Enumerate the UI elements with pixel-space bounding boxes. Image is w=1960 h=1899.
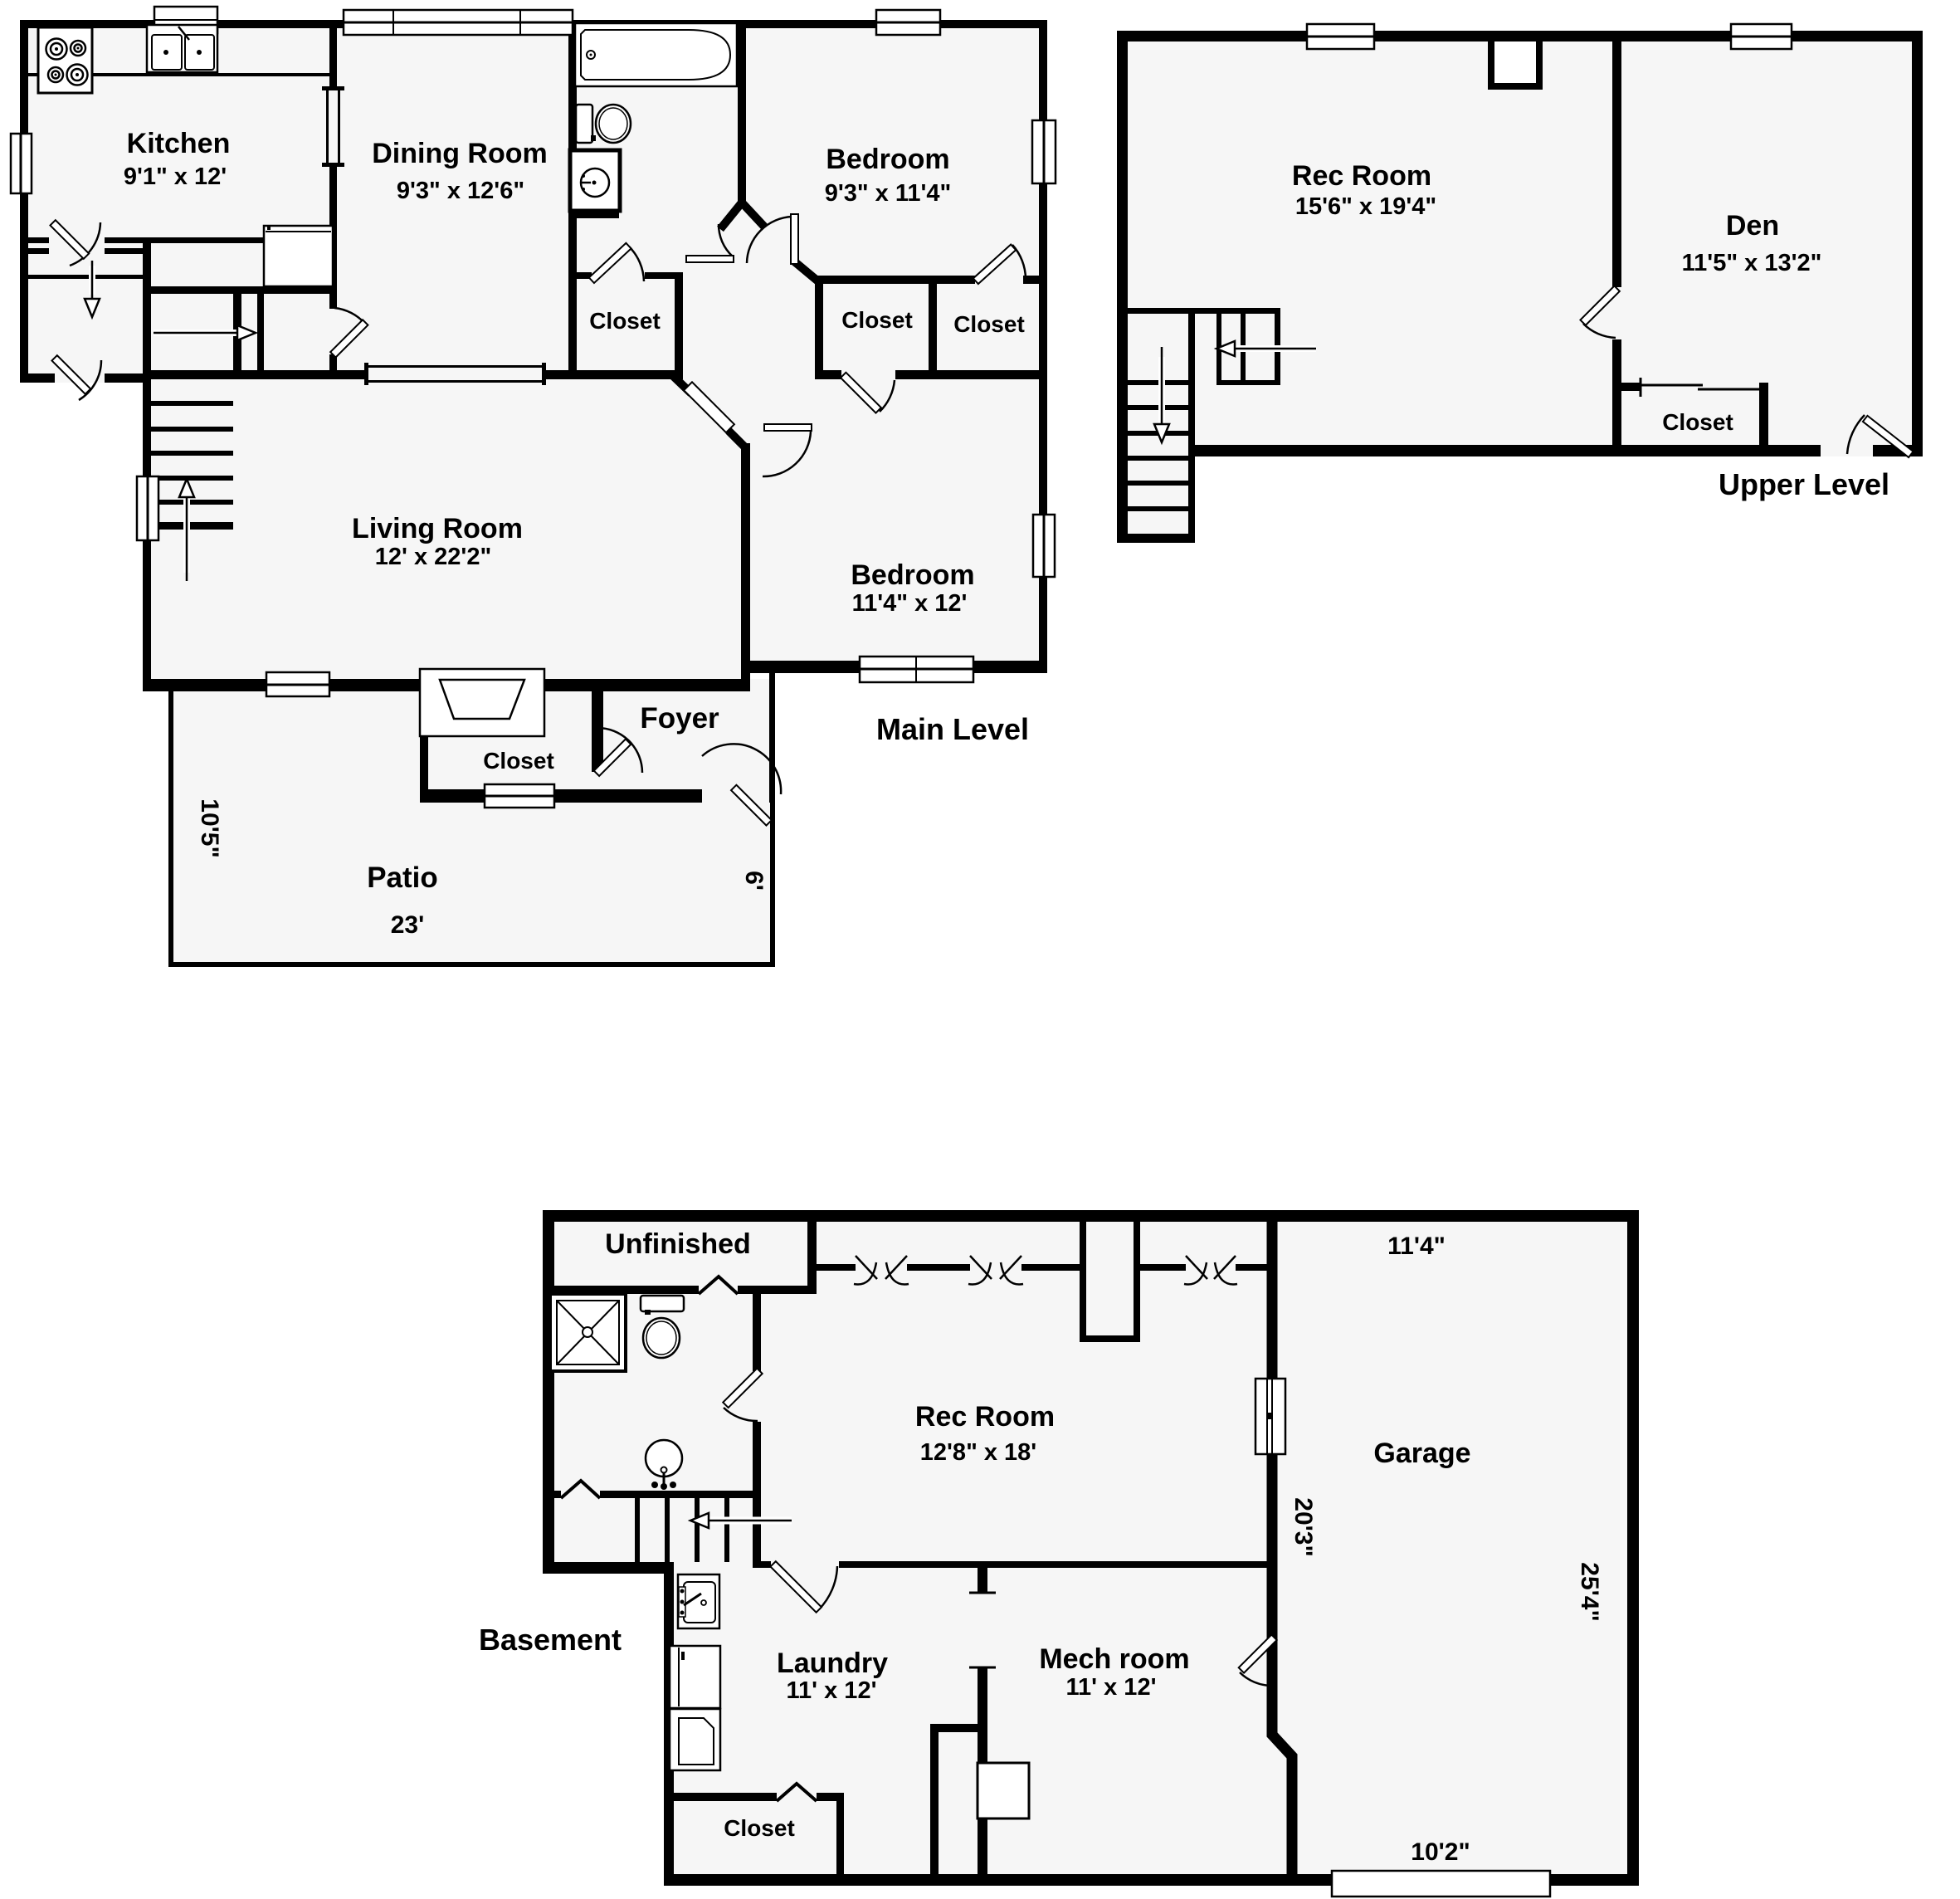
svg-text:15'6" x 19'4": 15'6" x 19'4" (1295, 193, 1436, 220)
svg-text:Living Room: Living Room (352, 513, 523, 544)
svg-text:6': 6' (740, 871, 768, 891)
svg-text:Closet: Closet (953, 311, 1025, 337)
svg-text:9'3" x 12'6": 9'3" x 12'6" (397, 178, 524, 204)
svg-text:Kitchen: Kitchen (127, 128, 231, 159)
svg-text:Basement: Basement (479, 1623, 622, 1657)
svg-text:Garage: Garage (1373, 1438, 1470, 1469)
svg-text:25'4": 25'4" (1576, 1562, 1603, 1621)
svg-text:Foyer: Foyer (640, 702, 719, 735)
svg-text:11' x 12': 11' x 12' (1066, 1674, 1157, 1701)
svg-text:11'4": 11'4" (1387, 1233, 1446, 1260)
svg-text:Bedroom: Bedroom (826, 144, 949, 175)
svg-text:Den: Den (1726, 210, 1779, 242)
svg-text:Dining Room: Dining Room (372, 138, 548, 169)
svg-text:Patio: Patio (367, 862, 438, 894)
svg-text:11' x 12': 11' x 12' (787, 1677, 877, 1704)
svg-text:Bedroom: Bedroom (851, 559, 974, 591)
svg-text:10'2": 10'2" (1411, 1838, 1470, 1866)
svg-text:Closet: Closet (589, 308, 661, 334)
svg-text:Closet: Closet (1662, 409, 1733, 435)
svg-text:20'3": 20'3" (1290, 1497, 1317, 1556)
svg-text:Rec Room: Rec Room (915, 1401, 1055, 1433)
svg-text:9'3" x 11'4": 9'3" x 11'4" (825, 180, 952, 207)
svg-text:Closet: Closet (483, 748, 554, 774)
svg-text:11'4" x 12': 11'4" x 12' (852, 590, 968, 617)
svg-text:Unfinished: Unfinished (605, 1228, 751, 1260)
svg-text:Rec Room: Rec Room (1292, 160, 1431, 192)
svg-text:Mech room: Mech room (1039, 1643, 1189, 1675)
svg-text:Closet: Closet (841, 307, 913, 333)
svg-text:Closet: Closet (724, 1815, 795, 1841)
svg-text:11'5" x 13'2": 11'5" x 13'2" (1682, 250, 1822, 276)
svg-text:Laundry: Laundry (777, 1648, 888, 1679)
svg-text:23': 23' (391, 911, 425, 939)
svg-text:12' x 22'2": 12' x 22'2" (375, 544, 491, 570)
svg-text:10'5": 10'5" (196, 798, 223, 857)
svg-text:Upper Level: Upper Level (1719, 467, 1889, 501)
svg-text:Main Level: Main Level (876, 712, 1029, 746)
svg-text:12'8" x 18': 12'8" x 18' (920, 1439, 1036, 1466)
svg-text:9'1" x 12': 9'1" x 12' (124, 164, 227, 190)
